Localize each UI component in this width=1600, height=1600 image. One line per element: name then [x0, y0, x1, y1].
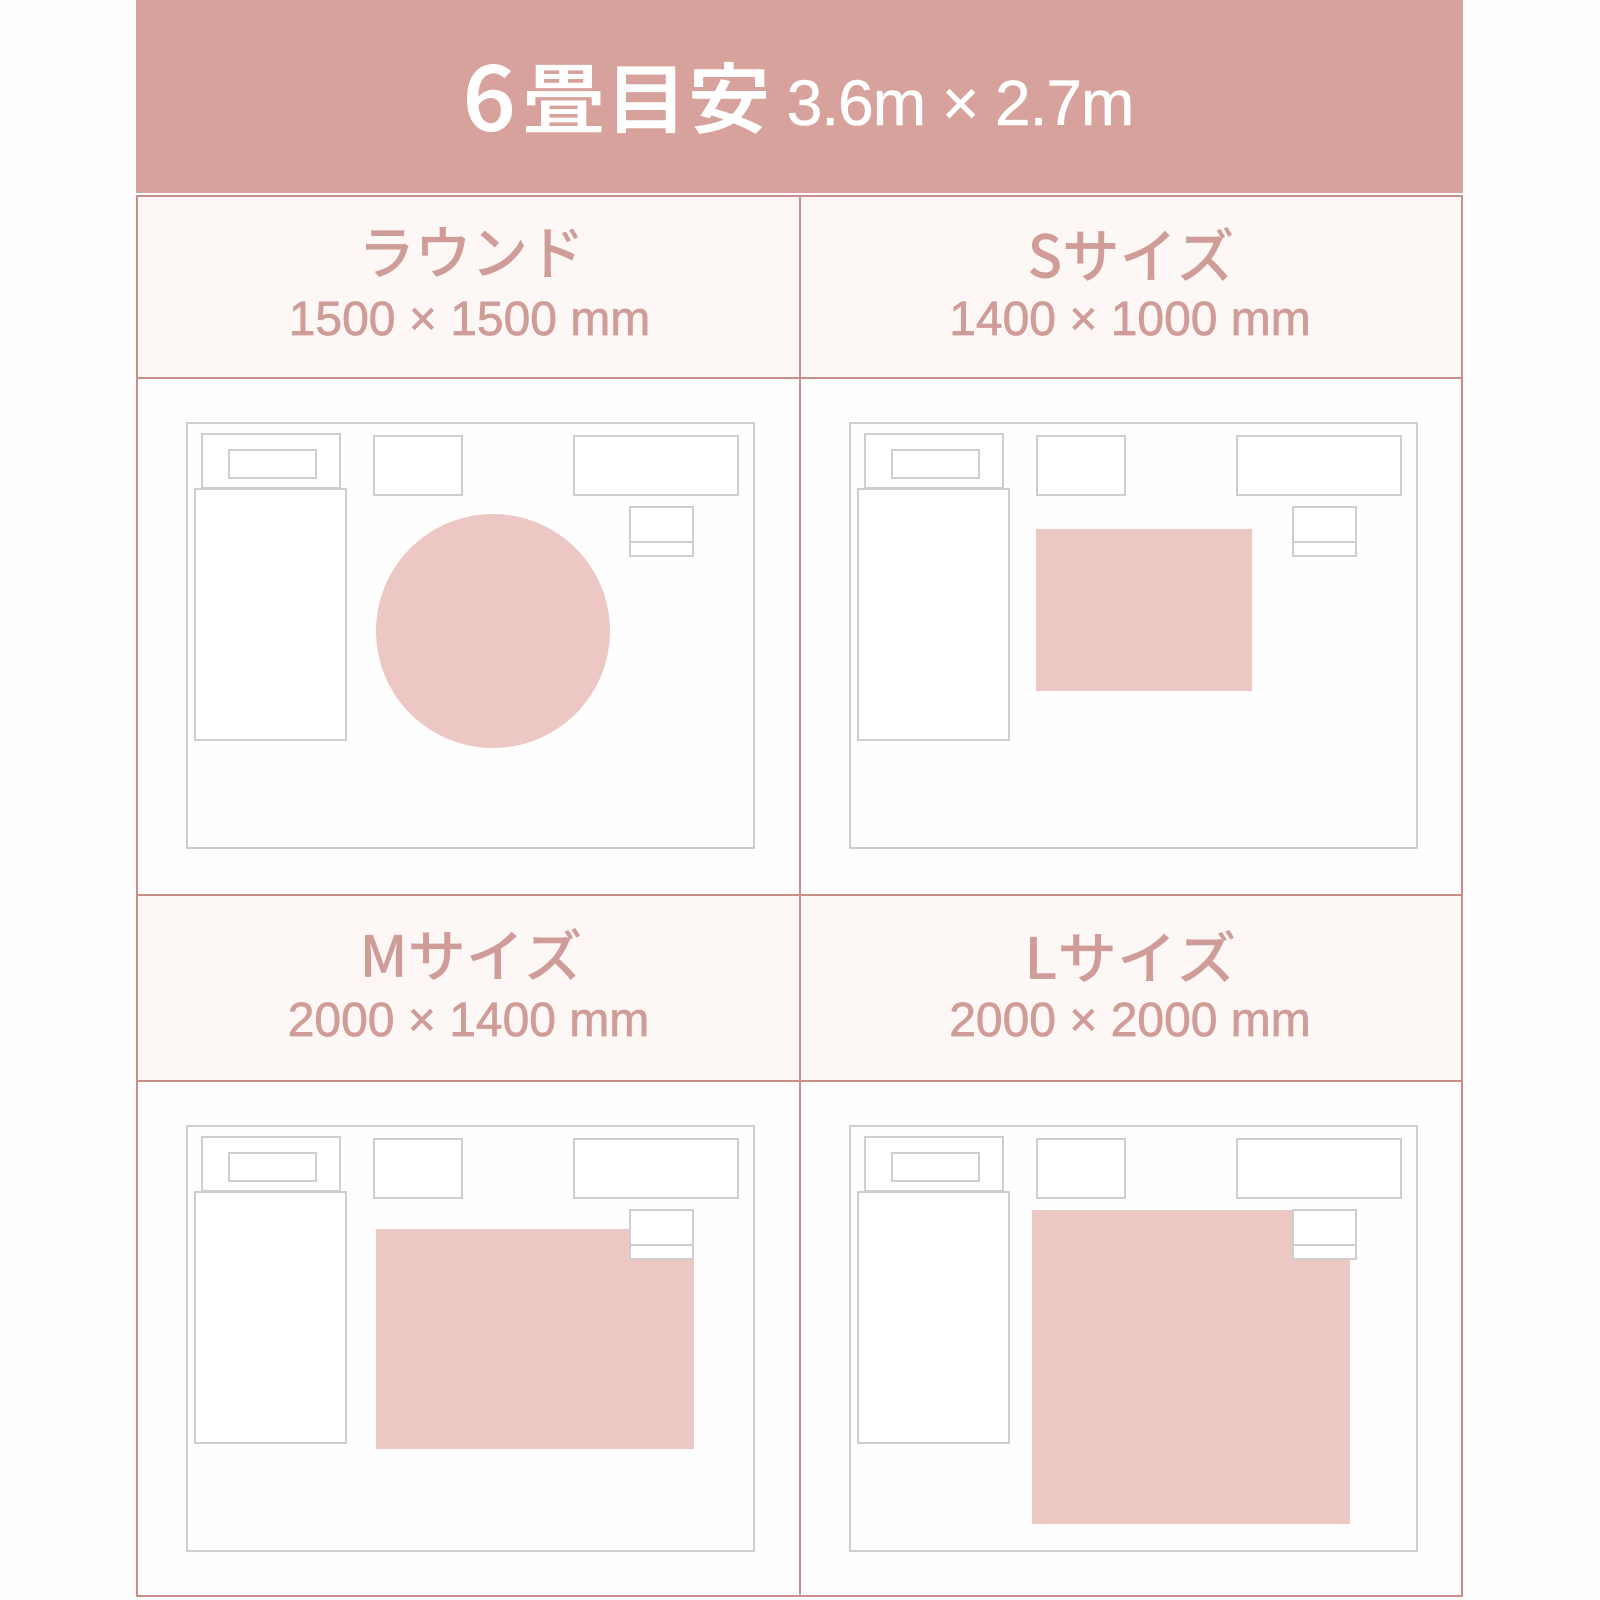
- svg-text:3.6m × 2.7m: 3.6m × 2.7m: [787, 67, 1134, 139]
- svg-text:1500 × 1500 mm: 1500 × 1500 mm: [289, 293, 651, 346]
- svg-text:1400 × 1000 mm: 1400 × 1000 mm: [949, 293, 1311, 346]
- svg-text:2000 × 2000 mm: 2000 × 2000 mm: [949, 994, 1311, 1047]
- svg-text:2000 × 1400 mm: 2000 × 1400 mm: [288, 994, 650, 1047]
